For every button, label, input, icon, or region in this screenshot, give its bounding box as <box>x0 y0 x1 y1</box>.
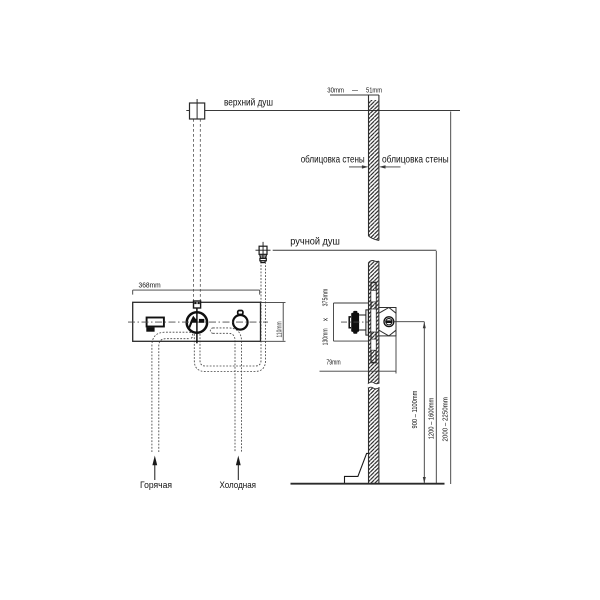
svg-text:79mm: 79mm <box>326 357 340 366</box>
svg-text:Холодная: Холодная <box>220 480 257 491</box>
svg-text:ручной душ: ручной душ <box>290 237 340 248</box>
svg-text:51mm: 51mm <box>366 86 382 95</box>
svg-text:900 – 1100mm: 900 – 1100mm <box>410 391 419 429</box>
svg-text:облицовка стены: облицовка стены <box>301 153 365 165</box>
svg-text:110mm: 110mm <box>274 321 283 337</box>
svg-text:2000 – 2250mm: 2000 – 2250mm <box>441 397 450 441</box>
svg-text:375mm: 375mm <box>321 289 330 307</box>
svg-text:x: x <box>321 318 330 322</box>
svg-text:–: – <box>352 86 359 95</box>
svg-text:1200 – 1600mm: 1200 – 1600mm <box>426 398 435 440</box>
svg-text:Горячая: Горячая <box>140 480 172 491</box>
svg-text:130mm: 130mm <box>321 328 330 345</box>
svg-text:368mm: 368mm <box>139 281 161 290</box>
svg-text:30mm: 30mm <box>327 86 344 95</box>
svg-text:верхний душ: верхний душ <box>224 98 273 109</box>
svg-text:облицовка стены: облицовка стены <box>382 153 449 165</box>
